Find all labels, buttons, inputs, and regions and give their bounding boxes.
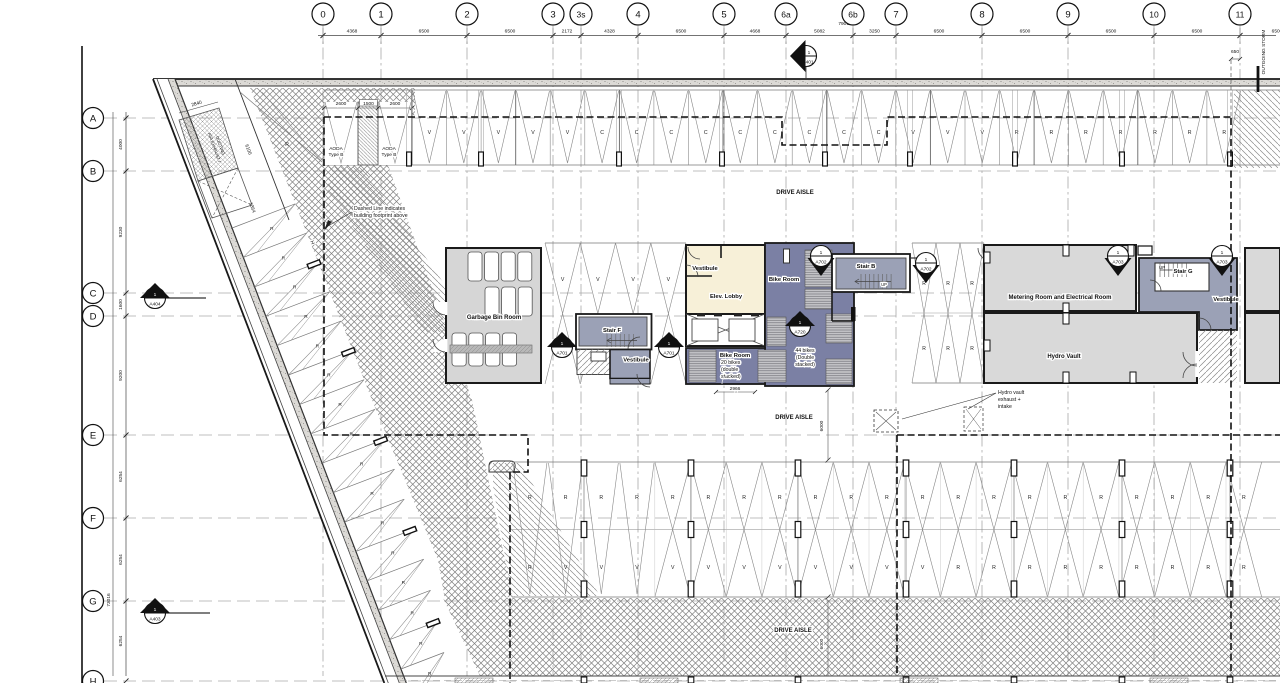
svg-text:9200: 9200: [118, 370, 124, 381]
svg-text:R: R: [370, 491, 374, 497]
svg-text:R: R: [1171, 565, 1175, 571]
svg-text:R: R: [671, 495, 675, 501]
svg-text:V: V: [631, 277, 635, 283]
svg-text:C: C: [808, 130, 812, 136]
svg-text:1: 1: [154, 607, 157, 613]
svg-text:R: R: [1206, 565, 1210, 571]
svg-text:A720: A720: [794, 330, 806, 336]
svg-text:8: 8: [979, 9, 984, 20]
svg-text:6500: 6500: [505, 29, 516, 35]
svg-text:R: R: [270, 226, 274, 232]
svg-text:Dashed Line indicates: Dashed Line indicates: [354, 206, 405, 212]
svg-text:R: R: [1188, 130, 1192, 136]
svg-text:R: R: [1242, 495, 1246, 501]
svg-text:V: V: [497, 130, 501, 136]
svg-text:C: C: [738, 130, 742, 136]
svg-text:Hydro Vault: Hydro Vault: [1047, 354, 1080, 360]
svg-text:6500: 6500: [934, 29, 945, 35]
svg-text:0: 0: [320, 9, 325, 20]
svg-text:Bike Room: Bike Room: [769, 277, 799, 283]
svg-text:R: R: [402, 580, 406, 586]
svg-text:A: A: [90, 113, 97, 124]
svg-text:20 bikes: 20 bikes: [721, 360, 741, 366]
svg-text:R: R: [970, 346, 974, 352]
svg-text:R: R: [992, 565, 996, 571]
svg-text:C: C: [773, 130, 777, 136]
svg-text:DRIVE AISLE: DRIVE AISLE: [776, 190, 813, 196]
svg-text:Vestibule: Vestibule: [1213, 297, 1239, 303]
svg-text:1600: 1600: [118, 299, 124, 310]
svg-text:A401: A401: [802, 60, 814, 66]
svg-text:stacked): stacked): [795, 362, 815, 368]
svg-text:V: V: [778, 565, 782, 571]
svg-text:11: 11: [1236, 9, 1245, 19]
svg-text:V: V: [814, 565, 818, 571]
svg-text:A702: A702: [920, 267, 932, 273]
svg-text:Stair G: Stair G: [1173, 269, 1192, 275]
svg-text:R: R: [419, 641, 423, 647]
svg-text:R: R: [304, 314, 308, 320]
svg-text:OUTGOING STORM: OUTGOING STORM: [1261, 30, 1267, 75]
svg-text:V: V: [561, 277, 565, 283]
svg-text:1: 1: [925, 257, 928, 263]
svg-text:R: R: [849, 495, 853, 501]
svg-text:V: V: [428, 130, 432, 136]
svg-text:1: 1: [799, 320, 802, 326]
svg-text:R: R: [814, 495, 818, 501]
svg-text:4000: 4000: [118, 139, 124, 150]
svg-text:1: 1: [561, 341, 564, 347]
svg-text:C: C: [842, 130, 846, 136]
svg-text:6500: 6500: [1192, 29, 1203, 35]
svg-text:V: V: [885, 565, 889, 571]
svg-text:R: R: [391, 550, 395, 556]
svg-text:R: R: [956, 495, 960, 501]
svg-text:C: C: [635, 130, 639, 136]
svg-text:E: E: [90, 430, 96, 441]
svg-text:R: R: [778, 495, 782, 501]
svg-text:Type B: Type B: [382, 152, 397, 158]
svg-text:3: 3: [550, 9, 555, 20]
svg-text:4328: 4328: [604, 29, 615, 35]
svg-text:1: 1: [154, 292, 157, 298]
svg-text:A701: A701: [663, 351, 675, 357]
svg-text:R: R: [528, 495, 532, 501]
svg-text:6a: 6a: [781, 9, 791, 19]
svg-text:R: R: [293, 285, 297, 291]
svg-text:R: R: [1153, 130, 1157, 136]
svg-text:C: C: [877, 130, 881, 136]
svg-text:R: R: [1206, 495, 1210, 501]
svg-text:44 bikes: 44 bikes: [795, 348, 815, 354]
svg-text:R: R: [338, 402, 342, 408]
svg-text:V: V: [911, 130, 915, 136]
svg-text:V: V: [635, 565, 639, 571]
svg-text:DRIVE AISLE: DRIVE AISLE: [775, 415, 812, 421]
svg-text:A701: A701: [556, 351, 568, 357]
svg-text:6500: 6500: [419, 29, 430, 35]
svg-text:B: B: [90, 166, 96, 177]
svg-text:R: R: [1222, 130, 1226, 136]
svg-text:R: R: [885, 495, 889, 501]
svg-text:C: C: [669, 130, 673, 136]
svg-text:R: R: [707, 495, 711, 501]
svg-text:C: C: [600, 130, 604, 136]
svg-text:V: V: [596, 277, 600, 283]
svg-text:6000: 6000: [819, 420, 825, 431]
svg-text:9: 9: [1065, 9, 1070, 20]
svg-text:1: 1: [820, 250, 823, 256]
svg-text:A702: A702: [815, 260, 827, 266]
svg-text:D: D: [90, 311, 97, 322]
svg-text:R: R: [1028, 565, 1032, 571]
svg-text:A703: A703: [1216, 260, 1228, 266]
svg-text:R: R: [1171, 495, 1175, 501]
svg-text:4368: 4368: [347, 29, 358, 35]
svg-text:6b: 6b: [848, 9, 858, 19]
svg-text:7: 7: [893, 9, 898, 20]
svg-text:6500: 6500: [676, 29, 687, 35]
svg-text:V: V: [566, 130, 570, 136]
svg-text:R: R: [285, 142, 289, 148]
svg-text:Hydro vault: Hydro vault: [998, 390, 1025, 396]
svg-text:Bike Room: Bike Room: [720, 353, 750, 359]
svg-text:Metering Room and Electrical R: Metering Room and Electrical Room: [1008, 295, 1111, 301]
svg-text:Garbage Bin Room: Garbage Bin Room: [467, 315, 521, 321]
svg-text:V: V: [707, 565, 711, 571]
svg-text:R: R: [922, 346, 926, 352]
svg-text:Stair F: Stair F: [603, 328, 621, 334]
svg-text:R: R: [742, 495, 746, 501]
svg-text:R: R: [1015, 130, 1019, 136]
svg-text:C: C: [704, 130, 708, 136]
svg-text:UP: UP: [881, 282, 887, 287]
svg-text:R: R: [360, 461, 364, 467]
svg-text:V: V: [531, 130, 535, 136]
svg-text:A703: A703: [1112, 260, 1124, 266]
svg-text:(double: (double: [721, 367, 738, 373]
svg-text:exhaust +: exhaust +: [998, 397, 1021, 403]
svg-text:73016: 73016: [106, 593, 112, 607]
svg-text:6500: 6500: [1106, 29, 1117, 35]
svg-text:AODA: AODA: [382, 146, 396, 152]
svg-text:G: G: [89, 596, 96, 607]
svg-text:R: R: [1084, 130, 1088, 136]
svg-text:Stair B: Stair B: [857, 264, 876, 270]
svg-text:R: R: [956, 565, 960, 571]
svg-text:2172: 2172: [562, 29, 573, 35]
svg-text:F: F: [90, 513, 96, 524]
svg-text:6254: 6254: [118, 635, 124, 646]
svg-text:4668: 4668: [750, 29, 761, 35]
svg-text:R: R: [946, 346, 950, 352]
svg-text:6000: 6000: [819, 638, 825, 649]
svg-text:R: R: [564, 495, 568, 501]
svg-text:2600: 2600: [336, 101, 347, 107]
svg-text:9230: 9230: [118, 226, 124, 237]
svg-text:A403: A403: [149, 617, 161, 623]
svg-text:stacked): stacked): [721, 374, 741, 380]
svg-text:R: R: [1099, 565, 1103, 571]
svg-text:R: R: [921, 495, 925, 501]
svg-text:R: R: [1050, 130, 1054, 136]
svg-text:A404: A404: [149, 302, 161, 308]
svg-text:10: 10: [1149, 9, 1159, 19]
svg-text:6500: 6500: [1272, 29, 1280, 35]
svg-text:R: R: [282, 255, 286, 261]
svg-text:R: R: [327, 373, 331, 379]
svg-text:R: R: [1135, 565, 1139, 571]
svg-text:V: V: [667, 277, 671, 283]
svg-text:2600: 2600: [390, 101, 401, 107]
svg-text:Elev. Lobby: Elev. Lobby: [710, 294, 743, 300]
svg-text:V: V: [742, 565, 746, 571]
svg-text:R: R: [946, 281, 950, 287]
svg-text:V: V: [849, 565, 853, 571]
svg-text:V: V: [946, 130, 950, 136]
svg-text:Vestibule: Vestibule: [623, 358, 649, 364]
svg-text:V: V: [980, 130, 984, 136]
svg-text:V: V: [462, 130, 466, 136]
svg-text:R: R: [381, 521, 385, 527]
svg-text:R: R: [410, 611, 414, 617]
svg-text:3250: 3250: [869, 29, 880, 35]
svg-text:1: 1: [1117, 250, 1120, 256]
svg-text:1: 1: [808, 50, 811, 56]
svg-text:5: 5: [721, 9, 726, 20]
svg-text:C: C: [90, 288, 97, 299]
svg-text:building footprint above: building footprint above: [354, 213, 408, 219]
svg-text:3s: 3s: [577, 9, 586, 19]
svg-text:1: 1: [1221, 250, 1224, 256]
svg-text:Vestibule: Vestibule: [692, 266, 718, 272]
svg-text:6500: 6500: [1020, 29, 1031, 35]
svg-text:R: R: [599, 495, 603, 501]
svg-text:AODA: AODA: [329, 146, 343, 152]
svg-text:1: 1: [378, 9, 383, 20]
svg-text:R: R: [970, 281, 974, 287]
svg-text:V: V: [921, 565, 925, 571]
svg-text:DRIVE AISLE: DRIVE AISLE: [774, 628, 811, 634]
svg-text:6254: 6254: [118, 554, 124, 565]
svg-text:R: R: [316, 343, 320, 349]
svg-text:1500: 1500: [363, 101, 374, 107]
svg-text:1: 1: [668, 341, 671, 347]
svg-text:V: V: [564, 565, 568, 571]
svg-text:R: R: [1028, 495, 1032, 501]
svg-text:H: H: [90, 676, 97, 683]
svg-text:R: R: [1064, 565, 1068, 571]
svg-text:(Double: (Double: [796, 355, 814, 361]
svg-text:UP: UP: [1159, 265, 1165, 270]
svg-text:4: 4: [635, 9, 640, 20]
svg-text:Type B: Type B: [329, 152, 344, 158]
svg-text:V: V: [600, 565, 604, 571]
svg-text:R: R: [528, 565, 532, 571]
svg-text:2: 2: [464, 9, 469, 20]
svg-text:5082: 5082: [814, 29, 825, 35]
svg-text:650: 650: [1231, 49, 1239, 55]
svg-text:6254: 6254: [118, 471, 124, 482]
svg-text:2966: 2966: [730, 386, 741, 392]
svg-text:intake: intake: [998, 404, 1012, 410]
svg-text:R: R: [1135, 495, 1139, 501]
svg-text:R: R: [635, 495, 639, 501]
svg-text:R: R: [1242, 565, 1246, 571]
svg-text:R: R: [1099, 495, 1103, 501]
svg-text:R: R: [1064, 495, 1068, 501]
svg-text:R: R: [1119, 130, 1123, 136]
svg-text:V: V: [671, 565, 675, 571]
svg-text:R: R: [992, 495, 996, 501]
